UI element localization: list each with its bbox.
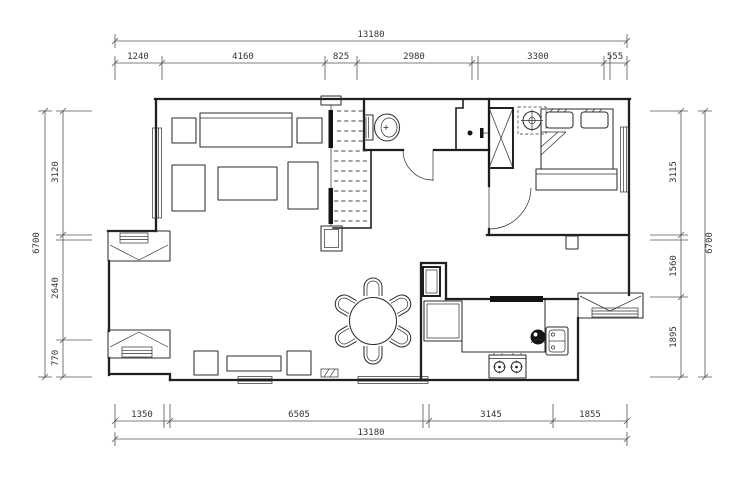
dim-label: 6505 xyxy=(288,410,310,420)
stove-icon xyxy=(489,353,526,378)
bay-window-icon xyxy=(108,330,170,358)
chair-icon xyxy=(364,346,382,364)
dining-table-icon xyxy=(350,298,397,345)
interior-walls xyxy=(333,99,629,380)
family-area-furniture xyxy=(194,351,338,377)
valve-icon xyxy=(480,128,484,138)
wall-kitchen-dark-segment xyxy=(490,296,543,302)
dim-label: 3115 xyxy=(669,161,679,183)
dim-bottom-overall: 13180 xyxy=(112,428,630,446)
side-table-icon xyxy=(172,118,196,143)
dim-label: 3300 xyxy=(527,52,549,62)
chair-icon xyxy=(332,326,357,351)
column-inner xyxy=(325,230,339,248)
dim-label: 3120 xyxy=(51,161,61,183)
floor-mat-icon xyxy=(321,369,338,377)
door-swing-icon xyxy=(403,150,433,181)
bay-window-icon xyxy=(108,231,170,261)
chair-icon xyxy=(364,278,382,296)
dim-label: 2980 xyxy=(403,52,425,62)
dim-label: 2640 xyxy=(51,277,61,299)
armchair-icon xyxy=(172,165,205,211)
dim-label: 4160 xyxy=(232,52,254,62)
dim-label: 3145 xyxy=(480,410,502,420)
dim-bottom-segments: 1350 6505 3145 1855 xyxy=(112,404,630,428)
bay-window-icon xyxy=(578,293,643,318)
shaft-symbol xyxy=(468,128,490,138)
chair-icon xyxy=(389,292,414,317)
dim-right-segments: 3115 1560 1895 xyxy=(650,108,688,380)
wall-shaft-nook xyxy=(456,99,463,150)
chair-icon xyxy=(332,292,357,317)
wardrobe-icon xyxy=(489,108,513,168)
dim-label: 1895 xyxy=(669,326,679,348)
dim-label: 6700 xyxy=(705,232,715,254)
tv-cabinet-icon xyxy=(227,356,281,371)
dim-label: 6700 xyxy=(32,232,42,254)
cabinet-icon xyxy=(287,351,311,375)
floor-plan-drawing: 13180 1240 4160 825 2980 3300 555 1350 6… xyxy=(0,0,740,500)
dim-label: 770 xyxy=(51,350,61,366)
dining-furniture xyxy=(332,278,414,364)
wall-stair-edge xyxy=(333,150,371,228)
dim-left-overall: 6700 xyxy=(32,108,52,380)
floor-plan-canvas: 13180 1240 4160 825 2980 3300 555 1350 6… xyxy=(0,0,740,500)
coffee-table-icon xyxy=(218,167,277,200)
bed-bench xyxy=(536,169,617,190)
column-icon xyxy=(321,96,341,105)
dim-left-segments: 3120 2640 770 xyxy=(51,108,92,380)
ceiling-lamp-icon xyxy=(518,107,546,134)
bedroom-furniture xyxy=(489,107,617,190)
dim-right-overall: 6700 xyxy=(698,108,715,380)
screen-post xyxy=(329,110,334,148)
doors xyxy=(403,150,531,229)
dim-label: 1350 xyxy=(131,410,153,420)
chair-icon xyxy=(389,326,414,351)
dim-label: 1560 xyxy=(669,255,679,277)
wall-kitchen-left xyxy=(421,263,446,380)
fridge-icon xyxy=(423,267,440,296)
dim-label: 1855 xyxy=(579,410,601,420)
armchair-icon xyxy=(288,162,318,209)
toilet-icon xyxy=(364,114,400,141)
dim-top-segments: 1240 4160 825 2980 3300 555 xyxy=(112,52,630,80)
kitchen-counter-icon xyxy=(462,300,545,352)
screen-post xyxy=(329,188,334,224)
dim-label: 825 xyxy=(333,52,349,62)
dim-label: 13180 xyxy=(357,30,384,40)
dim-top-overall: 13180 xyxy=(112,30,630,48)
kettle-icon xyxy=(531,330,546,345)
double-bed-icon xyxy=(536,109,617,190)
kitchen-fixtures xyxy=(423,267,568,378)
dim-label: 1240 xyxy=(127,52,149,62)
kitchen-counter-icon xyxy=(424,301,462,341)
wall-wing-bottom xyxy=(109,358,170,380)
drain-dot-icon xyxy=(468,131,473,136)
door-swing-icon xyxy=(489,187,531,229)
sink-icon xyxy=(546,327,568,355)
dim-label: 13180 xyxy=(357,428,384,438)
side-table-icon xyxy=(297,118,322,143)
wall-tab xyxy=(566,236,578,249)
dim-label: 555 xyxy=(607,52,623,62)
bathroom-fixtures xyxy=(364,114,489,141)
exterior-walls xyxy=(108,99,630,380)
living-room-furniture xyxy=(172,113,322,211)
cabinet-icon xyxy=(194,351,218,375)
